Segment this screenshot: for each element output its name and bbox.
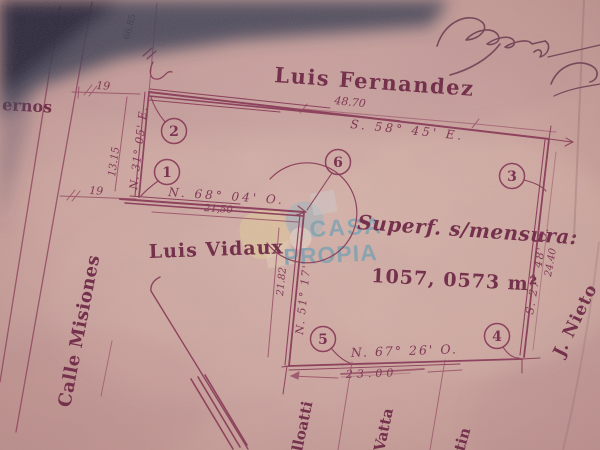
survey-plan-canvas: CASA PROPIA bbox=[0, 0, 600, 450]
scanned-survey-plan: CASA PROPIA bbox=[0, 0, 600, 450]
film-grain bbox=[0, 0, 600, 450]
